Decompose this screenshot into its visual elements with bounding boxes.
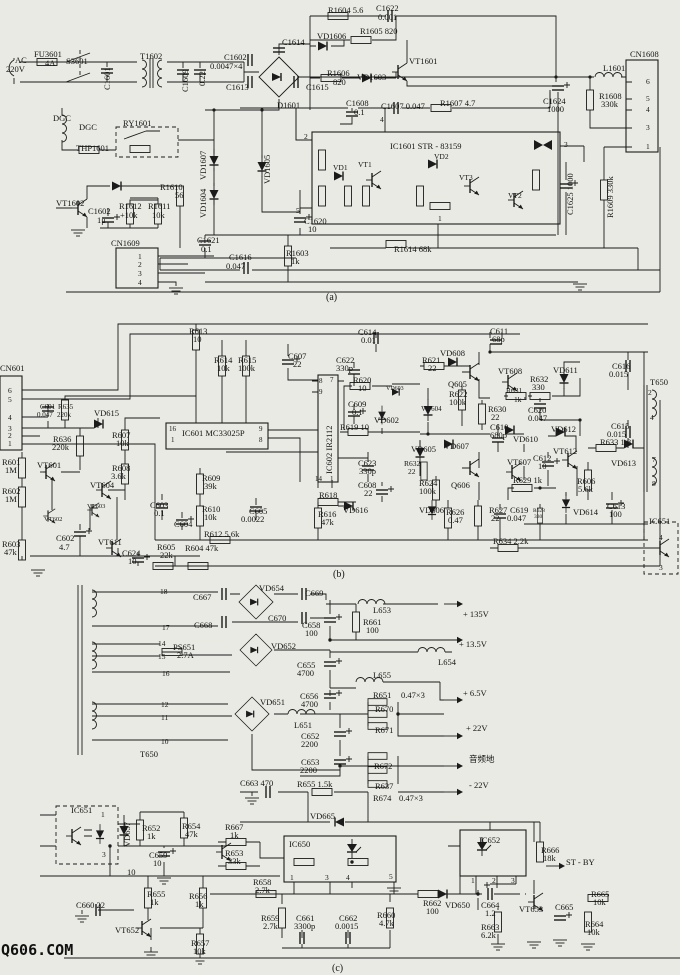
component-label: R1609 330k [605, 175, 615, 218]
component-label: C1609 [180, 69, 190, 92]
component-label: 100k [419, 486, 437, 496]
component-label: 39k [204, 481, 218, 491]
component-label: VD1603 [357, 72, 386, 82]
component-label: 3 [564, 140, 568, 149]
component-label: 10k [152, 210, 166, 220]
component-label: 2200 [301, 739, 318, 749]
component-label: 1 [290, 873, 294, 882]
component-label: 330 [534, 514, 543, 520]
component-label: 2 [138, 260, 142, 269]
component-label: VD608 [440, 348, 465, 358]
component-label: 6 [8, 386, 12, 395]
component-label: 5 [389, 872, 393, 881]
component-label: C660 22 [76, 900, 105, 910]
component-label: 330p [336, 363, 353, 373]
output-135v-arrow [444, 601, 463, 607]
component-label: IC602 IR2112 [324, 425, 334, 474]
component-label: 16 [162, 669, 170, 678]
component-label: VT1602 [56, 198, 84, 208]
component-label: 1 [330, 475, 334, 483]
component-label: 33k [228, 856, 242, 866]
component-label: 100k [449, 397, 467, 407]
component-label: 8 [319, 377, 323, 385]
component-label: 22 [408, 467, 416, 476]
component-label: VT602 [44, 516, 62, 523]
component-label: 12 [161, 700, 169, 709]
component-label: 16 [169, 425, 177, 433]
output-neg22v-arrow [444, 789, 463, 795]
component-label: 2.7k [255, 885, 271, 895]
component-label: C663 470 [240, 778, 273, 788]
component-label: VT1 [358, 160, 372, 169]
component-label: R612 5.6k [204, 529, 240, 539]
component-label: 10k [587, 927, 601, 937]
component-label: VD665 [310, 811, 335, 821]
component-label: 14 [315, 475, 323, 483]
component-label: 0.47 [448, 515, 463, 525]
component-label: R671 [375, 725, 393, 735]
component-label: VT653 [519, 904, 543, 914]
component-label: 1M [5, 494, 17, 504]
component-label: 1 [646, 142, 650, 151]
component-label: Q605 [448, 379, 467, 389]
component-label: + 135V [463, 609, 490, 619]
component-label: 4 [659, 533, 663, 542]
component-label: 3 [646, 123, 650, 132]
component-label: 0.047 [37, 411, 53, 419]
bridge-d1601 [259, 57, 299, 97]
component-label: 1.2 [485, 908, 496, 918]
component-label: 10k [217, 363, 231, 373]
component-label: 2.7A [177, 650, 195, 660]
component-label: C670 [268, 613, 286, 623]
component-label: 0.47×3 [399, 793, 423, 803]
component-label: VD607 [444, 441, 469, 451]
component-label: 0.047 [226, 261, 245, 271]
component-label: IC652 [479, 835, 500, 845]
component-label: 0.001 [378, 12, 397, 22]
st-by-arrow [546, 863, 565, 869]
component-label: 0.22 [197, 71, 207, 86]
component-label: 1k [147, 831, 156, 841]
component-label: DGC [53, 113, 71, 123]
component-label: R629 1k [513, 475, 543, 485]
component-label: S3601 [66, 56, 88, 66]
component-label: 1μ [97, 215, 106, 225]
component-label: D1601 [277, 100, 300, 110]
component-label: L651 [294, 720, 312, 730]
component-label: Q606 [451, 480, 470, 490]
component-label: 8 [259, 436, 263, 444]
component-label: 100k [238, 363, 256, 373]
component-label: R1614 68k [394, 244, 432, 254]
component-label: 22 [293, 359, 302, 369]
component-label: T650 [140, 749, 158, 759]
component-label: 17 [162, 623, 170, 632]
component-label: C665 [555, 902, 573, 912]
component-label: 1 [438, 214, 442, 223]
component-label: - 22V [469, 780, 489, 790]
component-label: 10k [593, 897, 607, 907]
component-label: VT611 [98, 537, 122, 547]
component-label: VD610 [513, 434, 538, 444]
component-label: R604 47k [185, 543, 219, 553]
component-label: VD651 [260, 697, 285, 707]
component-label: 0.015 [609, 369, 628, 379]
component-label: 1000 [547, 104, 564, 114]
component-label: 100 [426, 906, 439, 916]
component-label: 1M [5, 465, 17, 475]
component-label: VT601 [37, 460, 61, 470]
component-label: 10 [127, 867, 136, 877]
component-label: 14 [158, 639, 166, 648]
component-label: 330 [532, 382, 545, 392]
component-label: 3.6k [111, 471, 127, 481]
component-label: 22 [491, 412, 500, 422]
component-label: 1k [291, 256, 300, 266]
component-label: R619 10 [340, 422, 369, 432]
component-label: VD614 [573, 507, 599, 517]
component-label: 22 [491, 513, 500, 523]
component-label: VD2 [434, 152, 449, 161]
component-label: C604 [174, 519, 193, 529]
component-label: IC601 MC33025P [182, 428, 245, 438]
component-label: 9 [259, 425, 263, 433]
component-label: 47k [321, 517, 335, 527]
component-label: R637 [375, 781, 393, 791]
component-label: 0.0015 [335, 921, 358, 931]
component-label: 680p [490, 430, 507, 440]
component-label: R634 2.2k [493, 536, 529, 546]
component-label: 0.1 [354, 107, 365, 117]
component-label: 5 [296, 206, 300, 215]
component-label: 6 [646, 77, 650, 86]
component-label: 11 [161, 713, 168, 722]
component-label: R618 [319, 490, 337, 500]
component-label: C1607 0.047 [381, 101, 425, 111]
component-label: 10 [161, 737, 169, 746]
component-label: 1k [195, 899, 204, 909]
component-label: 3 [325, 873, 329, 882]
component-label: VD654 [259, 583, 285, 593]
component-label: VD602 [374, 415, 399, 425]
component-label: VT1601 [409, 56, 437, 66]
component-label: DGC [79, 122, 97, 132]
component-label: L653 [373, 605, 391, 615]
component-label: 3 [511, 876, 515, 885]
component-label: 4700 [301, 699, 318, 709]
connector-cn1609 [116, 248, 158, 288]
component-label: 5 [646, 94, 650, 103]
component-label: 4A [45, 58, 56, 68]
component-label: VT612 [553, 446, 577, 456]
component-label: 4.7 [59, 542, 70, 552]
component-label: R1607 4.7 [440, 98, 475, 108]
component-label: 1 [101, 810, 105, 819]
component-label: L1601 [603, 63, 625, 73]
component-label: 3300p [294, 921, 315, 931]
component-label: 7 [652, 455, 656, 464]
component-label: RY1601 [123, 118, 151, 128]
component-label: THP1601 [76, 143, 109, 153]
component-label: 5 [8, 395, 12, 404]
component-label: 68p [492, 334, 505, 344]
component-label: VD613 [611, 458, 636, 468]
output-audio-gnd-arrow [444, 763, 463, 769]
component-label: ST - BY [566, 857, 595, 867]
component-label: VD611 [553, 365, 578, 375]
component-label: 2 [492, 876, 496, 885]
component-label: VD605 [411, 444, 436, 454]
component-label: 22 [364, 488, 373, 498]
component-label: 6.2k [481, 930, 497, 940]
component-label: 3 [102, 850, 106, 859]
component-label: 1 [171, 436, 175, 444]
component-label: IC650 [289, 839, 310, 849]
component-label: 4 [650, 413, 654, 422]
component-label: 18 [160, 587, 168, 596]
component-label: 5.6k [578, 484, 594, 494]
component-label: 820 [333, 77, 346, 87]
component-label: 22k [160, 550, 174, 560]
component-label: VD657 [122, 822, 132, 847]
component-label: VT652 [115, 925, 139, 935]
component-label: T650 [650, 377, 668, 387]
component-label: 10k [204, 512, 218, 522]
component-label: + 22V [466, 723, 488, 733]
output-6v5-arrow [444, 697, 463, 703]
component-label: 0.0047×4 [210, 61, 243, 71]
component-label: VD616 [343, 505, 368, 515]
component-label: VD650 [445, 900, 470, 910]
component-label: 3 [138, 269, 142, 278]
component-label: IC651 [649, 516, 670, 526]
component-label: VD652 [271, 641, 296, 651]
component-label: VT607 [507, 457, 531, 467]
component-label: +10k [120, 210, 138, 220]
component-label: 1 [8, 439, 12, 448]
component-label: R1605 820 [360, 26, 398, 36]
component-label: 22 [428, 363, 437, 373]
component-label: VT608 [498, 366, 522, 376]
component-label: VD1605 [262, 155, 272, 184]
component-label: VT2 [508, 191, 522, 200]
component-label: 音频地 [469, 754, 495, 764]
component-label: 100 [366, 625, 379, 635]
component-label: 1k [230, 830, 239, 840]
component-label: 10 [538, 461, 547, 471]
component-label: VD604 [421, 405, 442, 413]
component-label: + 6.5V [463, 688, 488, 698]
component-label: C1615 [306, 82, 329, 92]
component-label: VD1 [333, 163, 348, 172]
watermark: Q606.COM [1, 941, 73, 959]
component-label: 220k [57, 411, 72, 419]
component-label: 1k [150, 897, 159, 907]
component-label: C667 [193, 592, 211, 602]
component-label: IC1601 STR - 83159 [390, 141, 462, 151]
component-label: 2 [648, 388, 652, 397]
component-label: 220V [6, 64, 26, 74]
component-label: T1602 [140, 51, 162, 61]
bridge-vd652 [240, 634, 272, 666]
component-label: 1k [514, 395, 522, 404]
component-label: R670 [375, 704, 393, 714]
component-label: R635 [58, 403, 74, 411]
component-label: 0.047 [507, 513, 526, 523]
component-label: R651 [373, 690, 391, 700]
component-label: 47k [185, 829, 199, 839]
component-label: 15 [158, 652, 166, 661]
component-label: R633 1.8 [600, 437, 631, 447]
component-label: 0.047 [528, 413, 547, 423]
component-label: R672 [374, 761, 392, 771]
connector-cn1608 [626, 60, 658, 152]
component-label: 4 [138, 278, 142, 287]
component-label: 0.1 [352, 407, 363, 417]
component-label: C1601 [102, 67, 112, 90]
component-label: 0.1 [154, 508, 165, 518]
component-label: VD603 [386, 386, 404, 392]
output-22v-arrow [444, 733, 463, 739]
component-label: 10 [153, 858, 162, 868]
caption-b: (b) [333, 569, 345, 580]
caption-a: (a) [326, 292, 337, 303]
component-label: VT603 [87, 503, 105, 510]
component-label: VD606 [419, 505, 444, 515]
component-label: 10 [358, 383, 367, 393]
schematic-svg: (a) (b) (c) Q606.COM AC220VFU36014AS3601… [0, 0, 680, 975]
component-label: 2200 [300, 765, 317, 775]
component-label: 1 [471, 876, 475, 885]
component-label: 8 [652, 479, 656, 488]
component-label: 2.7k [263, 921, 279, 931]
component-label: 10 [128, 556, 137, 566]
component-label: VD1606 [317, 31, 346, 41]
component-label: 3 [659, 563, 663, 572]
component-label: 4.7k [379, 918, 395, 928]
component-label: 0.0022 [241, 514, 264, 524]
component-label: VD615 [94, 408, 119, 418]
component-label: 330p [359, 466, 376, 476]
component-label: 4 [346, 873, 350, 882]
component-label: 56 [175, 190, 184, 200]
component-label: R1604 5.6 [328, 5, 363, 15]
component-label: 47k [4, 547, 18, 557]
component-label: VD612 [551, 424, 576, 434]
component-label: CN1609 [111, 238, 140, 248]
component-label: C669 [305, 588, 323, 598]
component-label: C1614 [282, 37, 305, 47]
component-label: 10 [308, 224, 317, 234]
component-label: CN601 [0, 363, 25, 373]
component-label: R631 [506, 386, 523, 395]
component-label: 10k [193, 946, 207, 956]
component-label: VT604 [90, 480, 115, 490]
component-label: IC651 [71, 805, 92, 815]
component-label: 9 [319, 388, 323, 396]
component-label: VT3 [459, 173, 473, 182]
component-label: 4700 [297, 668, 314, 678]
component-label: C1613 [226, 82, 249, 92]
component-label: VD1607 [198, 151, 208, 180]
component-label: L655 [373, 670, 391, 680]
component-label: 220k [52, 442, 70, 452]
component-label: 4 [646, 105, 650, 114]
component-label: + 13.5V [459, 639, 488, 649]
component-label: 0.1 [201, 244, 212, 254]
component-label: VD1604 [198, 188, 208, 218]
component-label: L654 [438, 657, 457, 667]
component-label: R655 1.5k [297, 779, 333, 789]
component-label: 330k [601, 99, 619, 109]
schematic-page: (a) (b) (c) Q606.COM AC220VFU36014AS3601… [0, 0, 680, 975]
component-label: 0.47×3 [401, 690, 425, 700]
component-label: R674 [373, 793, 392, 803]
component-label: CN1608 [630, 49, 659, 59]
component-label: 7 [330, 376, 334, 384]
component-label: C601 [40, 403, 56, 411]
component-label: 4 [380, 115, 384, 124]
component-label: 2 [304, 132, 308, 141]
component-label: C1625 1000 [565, 173, 575, 215]
component-label: 10k [116, 438, 130, 448]
component-label: 0.01 [361, 335, 376, 345]
component-label: 18k [543, 853, 557, 863]
component-label: 10 [193, 334, 202, 344]
caption-c: (c) [332, 963, 343, 974]
component-label: 100 [609, 509, 622, 519]
component-label: C668 [194, 620, 212, 630]
section-c-wiring [40, 585, 680, 958]
component-label: 4 [8, 413, 12, 422]
component-label: 100 [305, 628, 318, 638]
